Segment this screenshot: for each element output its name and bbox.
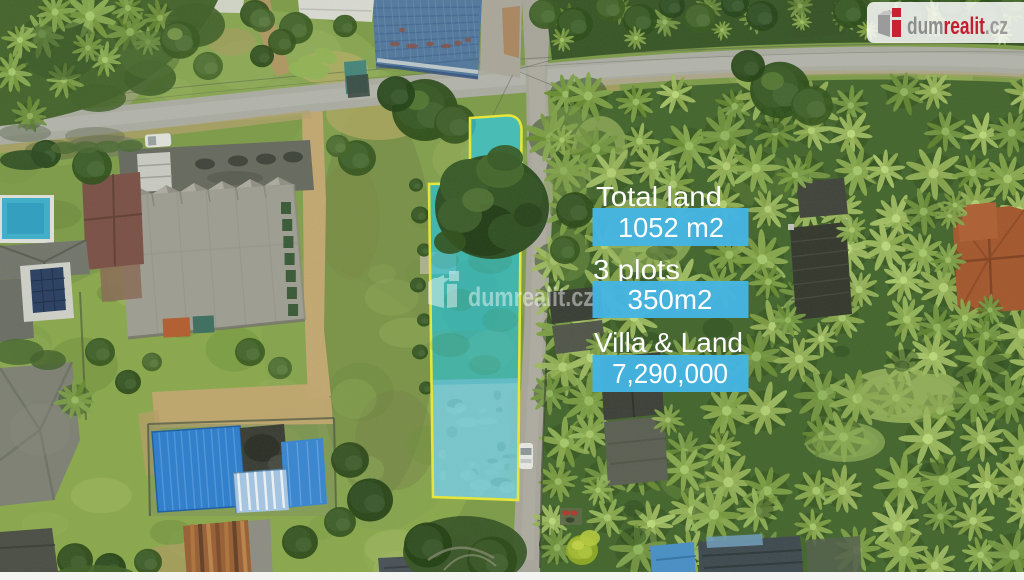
svg-text:3 plots: 3 plots [593,254,680,285]
svg-text:350m2: 350m2 [628,284,713,315]
svg-text:dumrealit.cz: dumrealit.cz [468,282,594,312]
svg-text:1052 m2: 1052 m2 [618,212,724,243]
svg-text:7,290,000: 7,290,000 [612,358,728,389]
svg-text:Total land: Total land [596,181,722,212]
svg-text:dumrealit.cz: dumrealit.cz [907,13,1008,40]
svg-text:Villa & Land: Villa & Land [594,327,743,358]
